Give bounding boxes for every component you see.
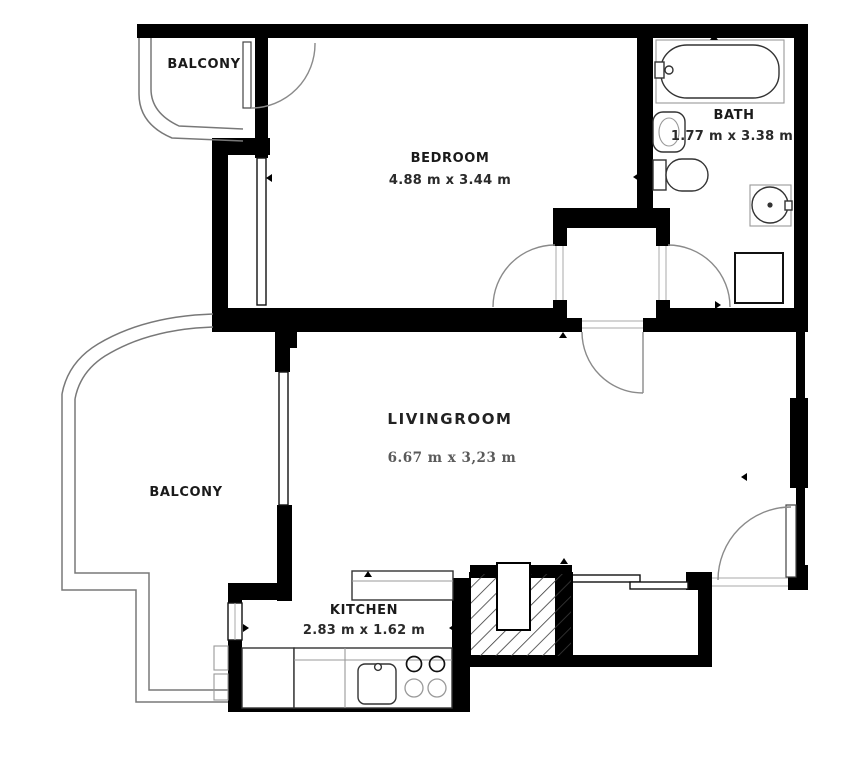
kitchen-faucet: [375, 664, 382, 671]
toilet-bowl: [666, 159, 708, 191]
bath-fixtures: [653, 40, 792, 303]
wall-kitchen-right: [452, 578, 470, 712]
wall-hall-right-upper: [656, 228, 670, 246]
wall-top: [137, 24, 808, 38]
wall-bedroom-left: [212, 138, 228, 308]
balcony-shelf-a: [214, 646, 228, 670]
opening-hall-livingroom: [582, 318, 643, 332]
kitchen-label: KITCHEN: [330, 603, 398, 618]
balcony-left-label: BALCONY: [149, 485, 222, 500]
floor-plan: BALCONY BEDROOM 4.88 m x 3.44 m BATH 1.7…: [0, 0, 848, 762]
bath-door-swing: [668, 245, 730, 307]
marker-arrow: [559, 332, 567, 338]
washing-machine-knob: [767, 202, 772, 207]
bath-dimensions: 1.77 m x 3.38 m: [671, 129, 793, 144]
kitchen-tall-unit: [242, 648, 294, 708]
balcony-left-railing-inner: [75, 399, 228, 690]
kitchen-dimensions: 2.83 m x 1.62 m: [303, 623, 425, 638]
bedroom-dimensions: 4.88 m x 3.44 m: [389, 173, 511, 188]
marker-arrow: [266, 174, 272, 182]
shaft: [470, 563, 572, 657]
wall-balcony-door-stub: [255, 38, 268, 158]
shower-tray: [735, 253, 783, 303]
wall-bottom-pier: [686, 572, 712, 590]
livingroom-dimensions: 6.67 m x 3,23 m: [388, 450, 517, 466]
wall-lr-right-thick: [790, 398, 808, 488]
wall-kitchen-top-left: [228, 583, 292, 600]
exit-door-swing: [718, 507, 791, 580]
balcony-left-railing-inner-top: [75, 327, 213, 399]
marker-arrow: [715, 301, 721, 309]
exit-door-leaf: [786, 505, 796, 577]
bath-label: BATH: [713, 108, 754, 123]
opening-exit-door: [712, 575, 788, 590]
wall-recess-right: [698, 578, 712, 667]
livingroom-door-swing: [582, 332, 643, 393]
opening-hall-bath: [656, 246, 670, 300]
marker-arrow: [243, 624, 249, 632]
balcony-top-railing-inner: [151, 38, 243, 129]
bedroom-label: BEDROOM: [411, 151, 490, 166]
marker-arrow: [560, 558, 568, 564]
bathtub-drain: [665, 66, 673, 74]
balcony-door-leaf: [243, 42, 251, 108]
wall-right-bath: [794, 24, 808, 332]
wall-mid-band-left: [212, 308, 582, 332]
shaft-duct: [497, 563, 530, 630]
toilet-tank: [653, 160, 666, 190]
marker-arrow: [633, 173, 639, 181]
bathtub: [661, 45, 779, 98]
wall-lr-left-step-a: [275, 332, 297, 348]
livingroom-south-sliding-window-b: [630, 582, 688, 589]
bedroom-door-swing: [493, 245, 555, 307]
livingroom-west-window: [279, 372, 288, 505]
livingroom-south-sliding-window-a: [572, 575, 640, 582]
marker-arrow: [741, 473, 747, 481]
livingroom-label: LIVINGROOM: [387, 410, 512, 428]
balcony-top-label: BALCONY: [167, 57, 240, 72]
hallway-floor: [567, 228, 656, 318]
balcony-top-railing-outer: [139, 38, 243, 141]
bathtub-faucet: [655, 62, 664, 78]
washing-machine-handle: [785, 201, 792, 210]
balcony-left-railing-outer: [62, 394, 228, 702]
wall-mid-band-right: [643, 308, 808, 332]
floor-plan-canvas: BALCONY BEDROOM 4.88 m x 3.44 m BATH 1.7…: [0, 0, 848, 762]
bedroom-west-window: [257, 158, 266, 305]
wall-hall-top: [553, 208, 670, 228]
balcony-railings: [62, 38, 243, 702]
wall-bedroom-bath-divider: [637, 38, 653, 208]
opening-bedroom-hall: [553, 246, 567, 300]
wall-lr-left-step-b: [275, 348, 290, 372]
balcony-shelf-b: [214, 674, 228, 700]
wall-hall-left-upper: [553, 228, 567, 246]
balcony-left-railing-outer-top: [62, 314, 213, 394]
